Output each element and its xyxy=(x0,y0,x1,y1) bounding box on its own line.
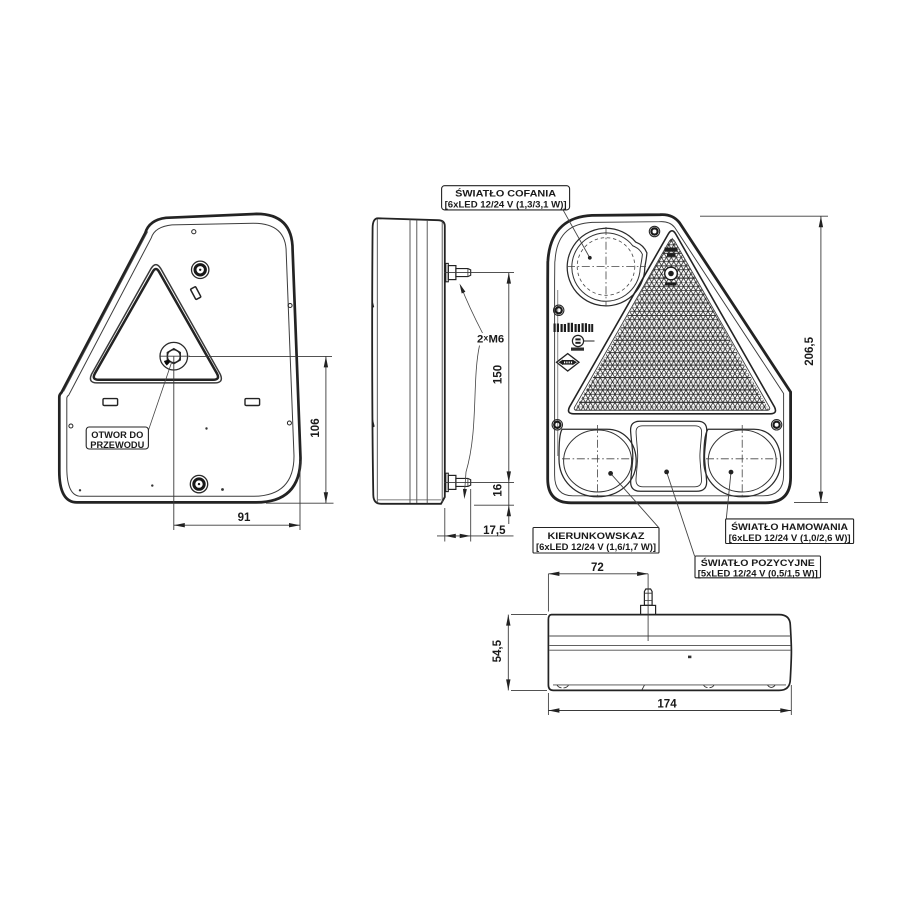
svg-text:16: 16 xyxy=(493,484,505,497)
svg-text:2: 2 xyxy=(477,334,483,346)
svg-text:ŚWIATŁO COFANIA: ŚWIATŁO COFANIA xyxy=(455,187,556,199)
svg-text:KIERUNKOWSKAZ: KIERUNKOWSKAZ xyxy=(548,531,645,542)
svg-text:PRZEWODU: PRZEWODU xyxy=(90,440,144,450)
svg-text:54,5: 54,5 xyxy=(492,639,504,662)
svg-text:M6: M6 xyxy=(489,334,505,346)
svg-text:[6xLED 12/24 V (1,3/3,1 W)]: [6xLED 12/24 V (1,3/3,1 W)] xyxy=(445,199,567,210)
svg-text:ŚWIATŁO HAMOWANIA: ŚWIATŁO HAMOWANIA xyxy=(731,521,848,533)
svg-text:ŚWIATŁO POZYCYJNE: ŚWIATŁO POZYCYJNE xyxy=(701,557,816,569)
svg-text:206,5: 206,5 xyxy=(804,336,816,365)
svg-text:[6xLED 12/24 V (1,6/1,7 W)]: [6xLED 12/24 V (1,6/1,7 W)] xyxy=(536,542,656,553)
svg-text:[5xLED 12/24 V (0,5/1,5 W)]: [5xLED 12/24 V (0,5/1,5 W)] xyxy=(698,568,818,579)
svg-text:17,5: 17,5 xyxy=(483,525,506,537)
svg-text:174: 174 xyxy=(657,698,677,710)
svg-text:150: 150 xyxy=(493,365,505,384)
svg-text:106: 106 xyxy=(310,418,322,437)
svg-text:OTWOR DO: OTWOR DO xyxy=(91,430,143,440)
svg-text:[6xLED 12/24 V (1,0/2,6 W)]: [6xLED 12/24 V (1,0/2,6 W)] xyxy=(729,533,851,544)
svg-text:91: 91 xyxy=(238,512,251,524)
svg-text:72: 72 xyxy=(591,562,604,574)
